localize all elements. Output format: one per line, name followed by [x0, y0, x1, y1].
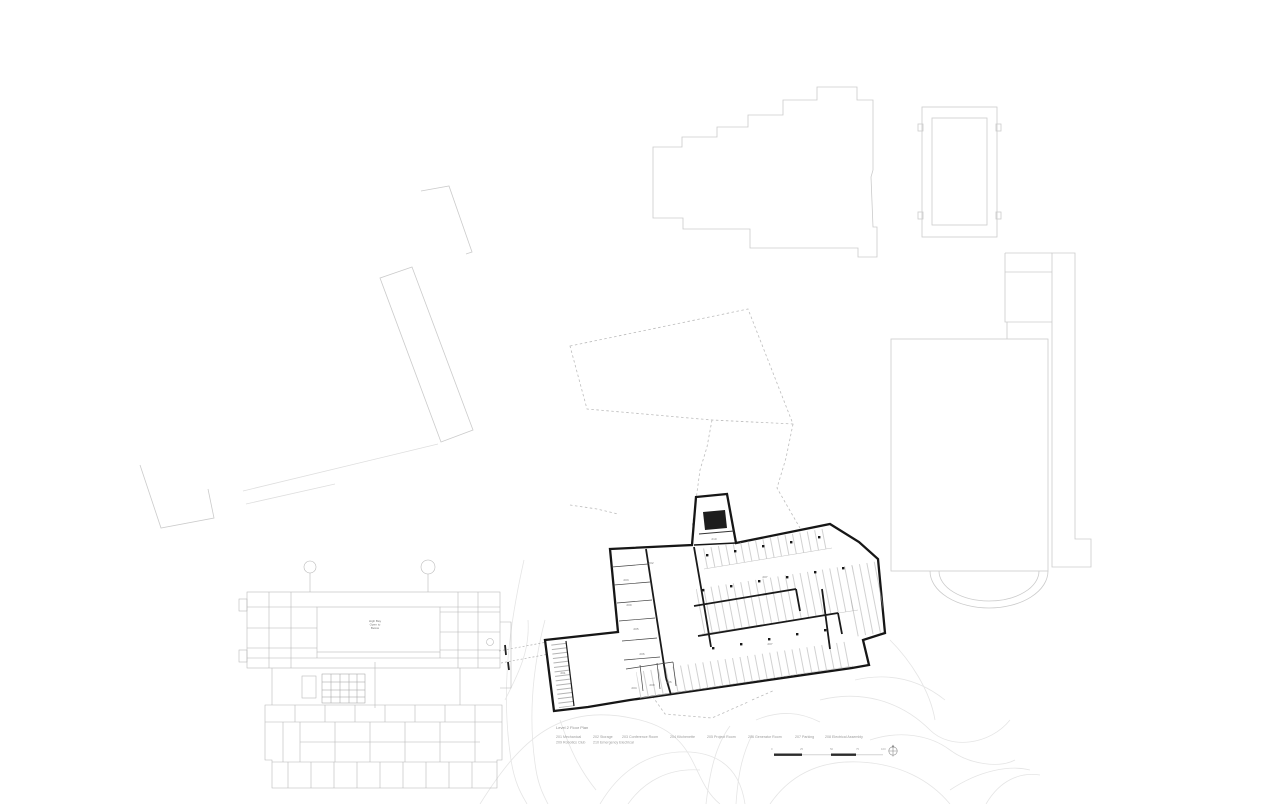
room-label-207: 207 — [767, 642, 772, 646]
building-outline-northeast — [918, 107, 1001, 237]
room-label-207: 207 — [762, 575, 767, 579]
legend-room-201: 201 Mechanical — [556, 735, 581, 739]
scale-segment-dark2 — [831, 754, 856, 756]
room-legend-row2: 209 Robotics Club210 Emergency Electrica… — [556, 741, 634, 745]
room-label-205: 205 — [633, 627, 638, 631]
room-label-206: 206 — [639, 652, 644, 656]
high-bay-label: High BayOpen toBelow — [369, 619, 382, 630]
north-arrow-icon — [889, 745, 897, 757]
building-outline-northwest — [380, 267, 473, 442]
building-outline-east — [891, 253, 1091, 608]
legend-room-209: 209 Robotics Club — [556, 741, 585, 745]
room-label-201: 201 — [560, 671, 565, 675]
scale-segment-light1 — [802, 754, 831, 755]
tower-stair — [703, 510, 727, 530]
legend-room-205: 205 Project Room — [707, 735, 736, 739]
scale-bar: 0255075100 — [771, 747, 886, 756]
scale-tick-0: 0 — [771, 747, 773, 751]
legend-room-206: 206 Generator Room — [748, 735, 782, 739]
room-label-204: 204 — [631, 686, 636, 690]
scale-tick-100: 100 — [881, 747, 886, 751]
drawing-title-block: Level 2 Floor Plan 201 Mechanical202 Sto… — [556, 725, 863, 745]
legend-room-202: 202 Storage — [593, 735, 613, 739]
legend-room-204: 204 Kitchenette — [670, 735, 695, 739]
scale-tick-75: 75 — [856, 747, 860, 751]
scale-segment-dark1 — [774, 754, 802, 756]
room-label-209: 209 — [626, 603, 631, 607]
room-label-210: 210 — [711, 537, 716, 541]
existing-building-plan — [239, 560, 511, 788]
scale-tick-labels: 0255075100 — [771, 747, 886, 751]
restroom-cluster — [322, 674, 365, 703]
room-legend-row1: 201 Mechanical202 Storage203 Conference … — [556, 735, 863, 739]
site-plan-drawing: High BayOpen toBelow — [0, 0, 1280, 804]
architectural-site-plan: High BayOpen toBelow — [0, 0, 1280, 804]
level2-floor-plan: 210202203209205206204208206201207207 — [545, 494, 885, 711]
scale-segment-light2 — [856, 754, 883, 755]
room-label-208: 208 — [649, 683, 654, 687]
building-outline-west — [140, 465, 214, 528]
scale-tick-25: 25 — [800, 747, 804, 751]
building-outline-north — [653, 87, 877, 257]
room-label-203: 203 — [623, 578, 628, 582]
legend-room-210: 210 Emergency Electrical — [593, 741, 634, 745]
room-label-202: 202 — [648, 561, 653, 565]
legend-room-207: 207 Parking — [795, 735, 814, 739]
site-context-buildings — [140, 87, 1091, 608]
legend-room-203: 203 Conference Room — [622, 735, 658, 739]
legend-room-208: 208 Electrical Assembly — [825, 735, 863, 739]
legend-title: Level 2 Floor Plan — [556, 725, 588, 730]
scale-tick-50: 50 — [830, 747, 834, 751]
room-label-206: 206 — [666, 680, 671, 684]
